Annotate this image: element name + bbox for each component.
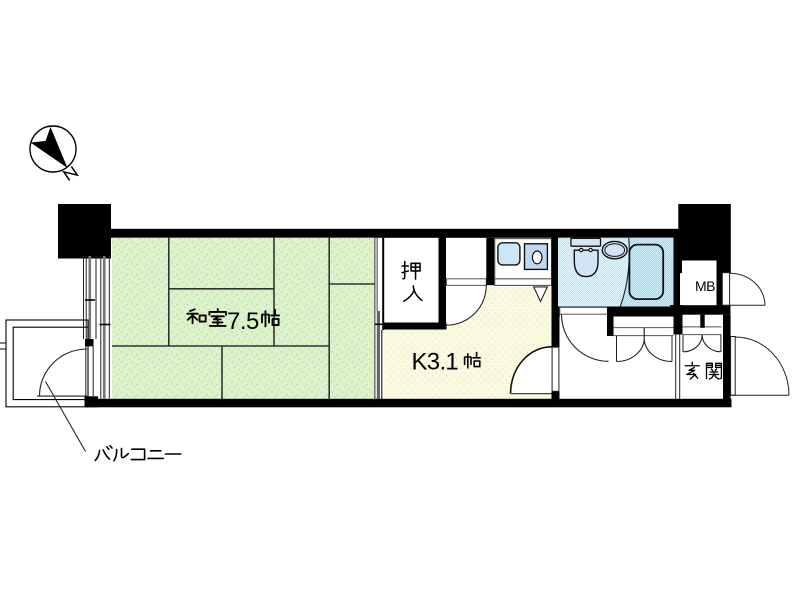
svg-text:MB: MB	[695, 278, 715, 294]
svg-text:7.5: 7.5	[227, 308, 259, 335]
svg-text:K3.1: K3.1	[412, 349, 459, 376]
